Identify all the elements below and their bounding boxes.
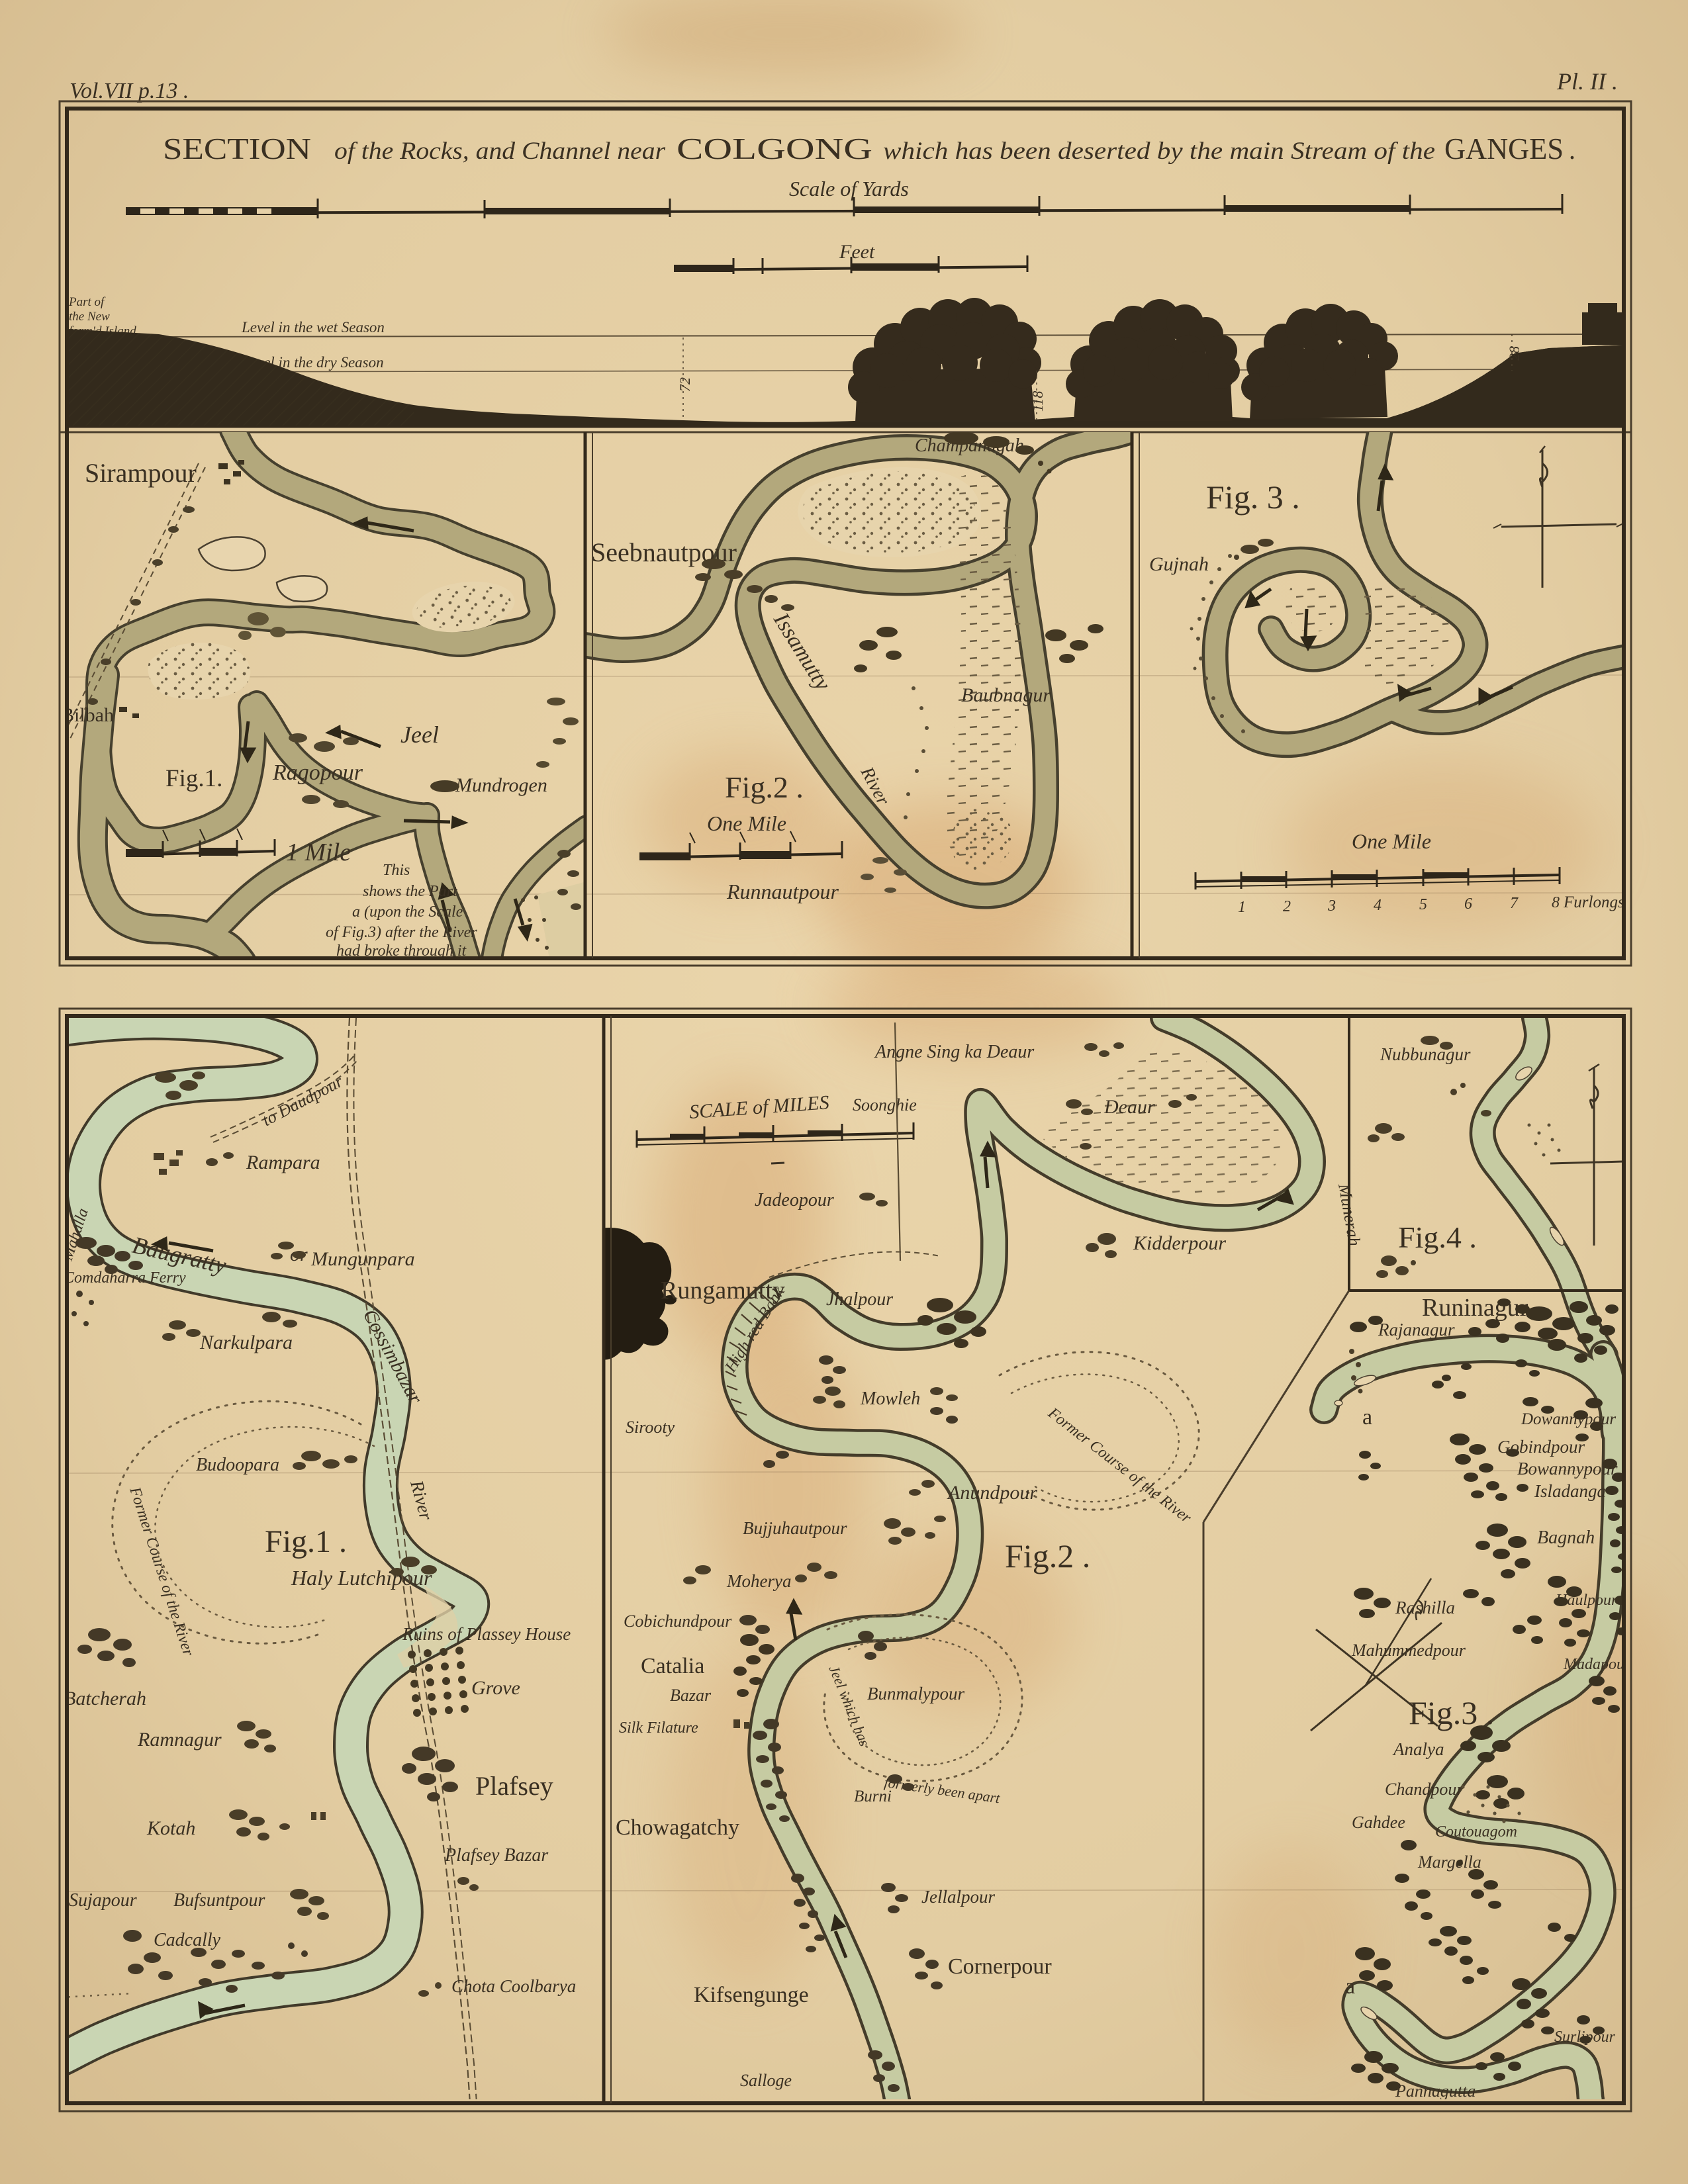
svg-text:Fig.1 .: Fig.1 . (265, 1524, 347, 1559)
svg-text:the New: the New (69, 310, 110, 324)
svg-text:Plafsey: Plafsey (475, 1771, 553, 1801)
svg-text:Angne Sing ka Deaur: Angne Sing ka Deaur (874, 1042, 1034, 1062)
svg-text:Anundpour: Anundpour (947, 1482, 1037, 1504)
svg-text:shows the Part: shows the Part (363, 883, 458, 900)
svg-text:Fig.4 .: Fig.4 . (1398, 1220, 1477, 1254)
svg-text:Margella: Margella (1417, 1852, 1481, 1872)
svg-text:Analya: Analya (1392, 1739, 1444, 1759)
svg-text:Cadcally: Cadcally (154, 1930, 221, 1950)
svg-text:Jhalpour: Jhalpour (826, 1289, 893, 1310)
svg-text:6: 6 (1464, 895, 1472, 913)
svg-text:This: This (383, 862, 410, 879)
svg-text:SECTION: SECTION (163, 132, 311, 165)
svg-text:Soonghie: Soonghie (853, 1095, 917, 1115)
svg-text:Moherya: Moherya (726, 1571, 791, 1591)
svg-text:Bufsuntpour: Bufsuntpour (173, 1890, 265, 1911)
svg-text:Burni: Burni (854, 1788, 892, 1805)
svg-text:a: a (1362, 1405, 1372, 1430)
svg-text:Chowagatchy: Chowagatchy (616, 1815, 739, 1840)
svg-text:3: 3 (1327, 897, 1336, 915)
svg-text:Coutouagom: Coutouagom (1435, 1823, 1517, 1841)
svg-text:Rampara: Rampara (246, 1152, 320, 1173)
svg-text:Fig.1.: Fig.1. (165, 765, 222, 792)
svg-text:a (upon the Scale: a (upon the Scale (352, 903, 463, 921)
svg-text:Kotah: Kotah (146, 1817, 195, 1839)
svg-text:8: 8 (1552, 894, 1560, 911)
svg-text:Bazar: Bazar (670, 1686, 712, 1705)
svg-text:Bowannypour: Bowannypour (1517, 1459, 1618, 1479)
svg-text:Fig.2 .: Fig.2 . (1005, 1537, 1090, 1574)
svg-text:Cornerpour: Cornerpour (948, 1954, 1052, 1979)
svg-text:Scale of Yards: Scale of Yards (789, 177, 909, 201)
svg-text:Chandpour: Chandpour (1385, 1780, 1464, 1799)
svg-text:Sirooty: Sirooty (626, 1418, 675, 1437)
svg-text:Silk Filature: Silk Filature (619, 1719, 698, 1737)
svg-text:Gujnah: Gujnah (1149, 553, 1209, 575)
svg-text:Kidderpour: Kidderpour (1133, 1232, 1226, 1254)
svg-text:Mungunpara: Mungunpara (310, 1248, 415, 1270)
svg-text:Runinagur: Runinagur (1422, 1294, 1528, 1322)
svg-text:Madapour: Madapour (1563, 1656, 1631, 1673)
svg-text:5: 5 (1419, 896, 1427, 913)
svg-text:Gahdee: Gahdee (1352, 1813, 1405, 1832)
svg-text:a: a (1345, 1974, 1355, 1999)
svg-text:Vol.VII p.13 .: Vol.VII p.13 . (70, 79, 189, 103)
svg-text:Pannagutta: Pannagutta (1395, 2081, 1476, 2101)
svg-text:Salloge: Salloge (740, 2071, 792, 2090)
svg-text:Bagnah: Bagnah (1537, 1527, 1595, 1548)
svg-text:7: 7 (1510, 895, 1519, 912)
svg-text:Comdaharra Ferry: Comdaharra Ferry (64, 1269, 186, 1287)
svg-text:GANGES: GANGES (1444, 132, 1564, 165)
svg-text:Level in the wet Season: Level in the wet Season (241, 319, 385, 336)
svg-text:72: 72 (677, 377, 693, 392)
svg-text:Isladanga: Isladanga (1534, 1481, 1606, 1501)
svg-text:1 Mile: 1 Mile (286, 839, 351, 866)
svg-text:Plafsey Bazar: Plafsey Bazar (444, 1845, 548, 1866)
svg-text:Sirampour: Sirampour (85, 458, 197, 488)
svg-text:One Mile: One Mile (1352, 829, 1431, 853)
svg-text:Cobichundpour: Cobichundpour (624, 1612, 732, 1631)
svg-text:Haly Lutchipour: Haly Lutchipour (291, 1566, 432, 1590)
svg-text:Pl. II .: Pl. II . (1556, 68, 1618, 95)
svg-text:Jadeopour: Jadeopour (755, 1190, 834, 1210)
svg-text:Deaur: Deaur (1103, 1096, 1155, 1118)
svg-text:Narkulpara: Narkulpara (199, 1332, 293, 1353)
svg-text:Part of: Part of (68, 295, 106, 309)
svg-text:28: 28 (1506, 346, 1523, 361)
svg-text:Ragopour: Ragopour (272, 760, 363, 785)
svg-text:Budoopara: Budoopara (196, 1455, 279, 1475)
svg-text:Catalia: Catalia (641, 1654, 704, 1678)
svg-text:Furlongs: Furlongs (1563, 893, 1624, 911)
svg-text:Rashilla: Rashilla (1395, 1598, 1455, 1617)
svg-text:Batcherah: Batcherah (64, 1688, 146, 1709)
svg-text:Bunmalypour: Bunmalypour (867, 1684, 964, 1704)
svg-text:Chota Coolbarya: Chota Coolbarya (451, 1976, 576, 1996)
svg-text:Jellalpour: Jellalpour (921, 1887, 995, 1907)
svg-text:4: 4 (1374, 897, 1382, 914)
svg-text:2: 2 (1283, 898, 1291, 915)
svg-text:Runnautpour: Runnautpour (726, 880, 839, 903)
svg-text:of the Rocks, and Channel near: of the Rocks, and Channel near (334, 138, 666, 165)
svg-text:118: 118 (1029, 391, 1046, 412)
svg-text:Jeel: Jeel (400, 721, 439, 748)
svg-text:1: 1 (1238, 899, 1246, 916)
svg-text:One Mile: One Mile (707, 811, 786, 835)
svg-text:Ruins of Plassey House: Ruins of Plassey House (402, 1624, 571, 1644)
svg-text:Feet: Feet (839, 241, 875, 263)
svg-text:of Fig.3) after the River: of Fig.3) after the River (326, 924, 477, 941)
svg-text:Mundrogen: Mundrogen (455, 774, 547, 796)
svg-text:.: . (1569, 135, 1575, 165)
svg-text:Fig. 3 .: Fig. 3 . (1206, 478, 1300, 516)
svg-text:COLGONG: COLGONG (677, 132, 872, 165)
svg-text:which has been deserted by the: which has been deserted by the main Stre… (883, 138, 1435, 165)
svg-text:Dowannypour: Dowannypour (1521, 1410, 1616, 1428)
svg-text:Mowleh: Mowleh (860, 1388, 920, 1409)
svg-text:Bujjuhautpour: Bujjuhautpour (743, 1518, 847, 1538)
svg-text:Nubbunagur: Nubbunagur (1380, 1044, 1471, 1064)
svg-text:Kifsengunge: Kifsengunge (694, 1983, 809, 2007)
svg-text:Grove: Grove (471, 1677, 520, 1699)
svg-text:Ramnagur: Ramnagur (137, 1729, 222, 1751)
svg-text:Sujapour: Sujapour (69, 1890, 137, 1911)
svg-text:Baubnagur: Baubnagur (961, 684, 1051, 706)
svg-text:Fig.2 .: Fig.2 . (725, 770, 804, 804)
svg-text:Rajanagur: Rajanagur (1378, 1320, 1455, 1340)
